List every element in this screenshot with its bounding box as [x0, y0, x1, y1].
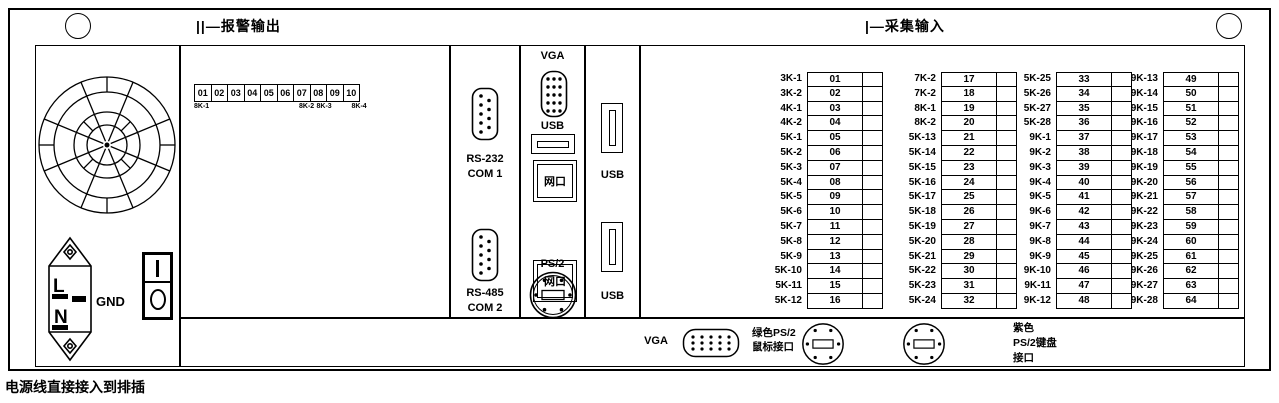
terminal-number-cell: 46	[1056, 264, 1112, 279]
terminal-number-cell: 07	[807, 161, 863, 176]
terminal-number-cell: 57	[1163, 190, 1219, 205]
terminal-label: 9K-26	[1113, 264, 1158, 279]
terminal-empty-cell	[863, 102, 883, 117]
terminal-number-cell: 55	[1163, 161, 1219, 176]
terminal-number-cell: 50	[1163, 87, 1219, 102]
rear-panel: ||—报警输出 |—采集输入	[8, 8, 1271, 371]
terminal-number-cell: 06	[807, 146, 863, 161]
terminal-label: 9K-2	[1006, 146, 1051, 161]
screw-hole-icon	[1216, 13, 1242, 39]
terminal-number-cell: 39	[1056, 161, 1112, 176]
terminal-number-cell: 53	[1163, 131, 1219, 146]
terminal-number-cell: 43	[1056, 220, 1112, 235]
alarm-terminal-cell: 06	[277, 84, 295, 102]
terminal-row: 49	[1163, 72, 1239, 87]
terminal-number-cell: 08	[807, 176, 863, 191]
terminal-label: 9K-15	[1113, 102, 1158, 117]
terminal-number-cell: 17	[941, 72, 997, 87]
terminal-table: 49505152535455565758596061626364	[1163, 72, 1239, 309]
alarm-terminal-cell: 03	[227, 84, 245, 102]
terminal-number-cell: 20	[941, 116, 997, 131]
ps2-label: PS/2	[521, 258, 584, 270]
terminal-label: 9K-25	[1113, 250, 1158, 265]
terminal-label: 5K-7	[757, 220, 802, 235]
alarm-sublabels: 8K-18K-28K-38K-4	[194, 103, 374, 113]
terminal-row: 10	[807, 205, 883, 220]
switch-off-mark	[145, 283, 170, 316]
terminal-empty-cell	[1219, 205, 1239, 220]
terminal-number-cell: 62	[1163, 264, 1219, 279]
alarm-relay-label: 8K-3	[317, 103, 332, 110]
terminal-number-cell: 23	[941, 161, 997, 176]
terminal-number-cell: 18	[941, 87, 997, 102]
terminal-number-cell: 52	[1163, 116, 1219, 131]
terminal-row: 54	[1163, 146, 1239, 161]
terminal-label: 5K-15	[891, 161, 936, 176]
terminal-label: 9K-6	[1006, 205, 1051, 220]
usb-port-icon	[601, 103, 623, 153]
gnd-label: GND	[96, 294, 125, 309]
green-ps2-mouse-label: 绿色PS/2 鼠标接口	[752, 326, 796, 354]
power-inlet-icon: L N	[44, 236, 96, 362]
terminal-label: 9K-19	[1113, 161, 1158, 176]
terminal-label: 8K-1	[891, 102, 936, 117]
terminal-label: 9K-10	[1006, 264, 1051, 279]
ps2-connector-icon	[529, 271, 577, 319]
terminal-number-cell: 25	[941, 190, 997, 205]
terminal-label: 5K-3	[757, 161, 802, 176]
terminal-empty-cell	[1219, 72, 1239, 87]
terminal-number-cell: 21	[941, 131, 997, 146]
terminal-table: 01020304050607080910111213141516	[807, 72, 883, 309]
acquisition-column-1: 3K-13K-24K-14K-25K-15K-25K-35K-45K-55K-6…	[757, 72, 883, 309]
terminal-number-cell: 27	[941, 220, 997, 235]
terminal-number-cell: 15	[807, 279, 863, 294]
terminal-number-cell: 33	[1056, 72, 1112, 87]
terminal-label: 5K-22	[891, 264, 936, 279]
terminal-label: 9K-18	[1113, 146, 1158, 161]
power-cord-note: 电源线直接接入到排插	[5, 377, 145, 397]
ethernet-port-icon: 网口	[533, 160, 577, 202]
vga-connector-icon	[540, 70, 568, 118]
video-lan-section: VGA USB 网口 网口 PS/2	[520, 45, 585, 318]
terminal-label: 5K-8	[757, 235, 802, 250]
terminal-label: 5K-20	[891, 235, 936, 250]
terminal-empty-cell	[1219, 294, 1239, 309]
terminal-label: 9K-3	[1006, 161, 1051, 176]
usb-port-icon	[531, 134, 575, 154]
alarm-output-title: ||—报警输出	[196, 16, 281, 36]
terminal-empty-cell	[1219, 190, 1239, 205]
terminal-label: 5K-11	[757, 279, 802, 294]
terminal-label: 5K-5	[757, 190, 802, 205]
terminal-empty-cell	[863, 116, 883, 131]
alarm-terminal-cell: 10	[343, 84, 361, 102]
terminal-row: 59	[1163, 220, 1239, 235]
terminal-label: 9K-24	[1113, 235, 1158, 250]
terminal-label: 4K-1	[757, 102, 802, 117]
terminal-number-cell: 32	[941, 294, 997, 309]
terminal-empty-cell	[863, 87, 883, 102]
purple-ps2-keyboard-label: 紫色 PS/2键盘 接口	[1013, 321, 1057, 366]
terminal-row: 55	[1163, 161, 1239, 176]
com1-label: COM 1	[451, 168, 519, 180]
terminal-empty-cell	[1219, 146, 1239, 161]
terminal-row: 05	[807, 131, 883, 146]
terminal-row: 57	[1163, 190, 1239, 205]
terminal-empty-cell	[1219, 279, 1239, 294]
terminal-label: 9K-11	[1006, 279, 1051, 294]
terminal-label: 3K-2	[757, 87, 802, 102]
terminal-empty-cell	[863, 205, 883, 220]
terminal-label: 9K-16	[1113, 116, 1158, 131]
terminal-label: 9K-21	[1113, 190, 1158, 205]
terminal-row: 63	[1163, 279, 1239, 294]
alarm-terminal-cell: 02	[211, 84, 229, 102]
terminal-row: 07	[807, 161, 883, 176]
terminal-empty-cell	[1219, 220, 1239, 235]
terminal-empty-cell	[863, 146, 883, 161]
switch-on-mark	[145, 255, 170, 283]
terminal-label: 9K-7	[1006, 220, 1051, 235]
terminal-empty-cell	[863, 235, 883, 250]
terminal-empty-cell	[863, 220, 883, 235]
terminal-number-cell: 14	[807, 264, 863, 279]
terminal-number-cell: 60	[1163, 235, 1219, 250]
terminal-number-cell: 26	[941, 205, 997, 220]
terminal-label: 9K-14	[1113, 87, 1158, 102]
terminal-number-cell: 02	[807, 87, 863, 102]
terminal-label: 5K-2	[757, 146, 802, 161]
terminal-number-cell: 61	[1163, 250, 1219, 265]
terminal-empty-cell	[863, 131, 883, 146]
terminal-label: 9K-13	[1113, 72, 1158, 87]
terminal-number-cell: 54	[1163, 146, 1219, 161]
terminal-number-cell: 48	[1056, 294, 1112, 309]
terminal-row: 03	[807, 102, 883, 117]
terminal-number-cell: 59	[1163, 220, 1219, 235]
terminal-row: 12	[807, 235, 883, 250]
terminal-label: 5K-12	[757, 294, 802, 309]
bottom-connector-strip: VGA 绿色PS/2 鼠标接口	[180, 318, 1245, 367]
terminal-labels: 7K-27K-28K-18K-25K-135K-145K-155K-165K-1…	[891, 72, 941, 309]
terminal-label: 5K-1	[757, 131, 802, 146]
terminal-label: 7K-2	[891, 87, 936, 102]
usb-section: USB USB	[585, 45, 640, 318]
terminal-empty-cell	[1219, 264, 1239, 279]
terminal-labels: 3K-13K-24K-14K-25K-15K-25K-35K-45K-55K-6…	[757, 72, 807, 309]
terminal-empty-cell	[863, 264, 883, 279]
alarm-terminal-cell: 04	[244, 84, 262, 102]
terminal-row: 01	[807, 72, 883, 87]
terminal-empty-cell	[1219, 161, 1239, 176]
alarm-relay-label: 8K-1	[194, 103, 209, 110]
terminal-empty-cell	[1219, 87, 1239, 102]
terminal-label: 5K-13	[891, 131, 936, 146]
terminal-row: 52	[1163, 116, 1239, 131]
terminal-number-cell: 56	[1163, 176, 1219, 191]
terminal-row: 06	[807, 146, 883, 161]
usb-label: USB	[521, 120, 584, 132]
terminal-label: 5K-27	[1006, 102, 1051, 117]
terminal-row: 13	[807, 250, 883, 265]
terminal-row: 64	[1163, 294, 1239, 309]
terminal-label: 9K-8	[1006, 235, 1051, 250]
terminal-label: 9K-12	[1006, 294, 1051, 309]
terminal-row: 51	[1163, 102, 1239, 117]
terminal-empty-cell	[1219, 235, 1239, 250]
terminal-label: 5K-26	[1006, 87, 1051, 102]
terminal-number-cell: 35	[1056, 102, 1112, 117]
terminal-label: 9K-5	[1006, 190, 1051, 205]
terminal-label: 3K-1	[757, 72, 802, 87]
terminal-label: 5K-19	[891, 220, 936, 235]
terminal-number-cell: 31	[941, 279, 997, 294]
terminal-number-cell: 34	[1056, 87, 1112, 102]
acquisition-input-section: 3K-13K-24K-14K-25K-15K-25K-35K-45K-55K-6…	[640, 45, 1245, 318]
terminal-label: 5K-23	[891, 279, 936, 294]
terminal-row: 56	[1163, 176, 1239, 191]
db9-rs232-icon	[471, 87, 499, 141]
terminal-number-cell: 29	[941, 250, 997, 265]
terminal-labels: 5K-255K-265K-275K-289K-19K-29K-39K-49K-5…	[1006, 72, 1056, 309]
vga-connector-icon	[682, 328, 740, 358]
power-switch-icon	[142, 252, 173, 320]
terminal-empty-cell	[1219, 176, 1239, 191]
com-ports-section: RS-232 COM 1 RS-485 COM 2	[450, 45, 520, 318]
acquisition-input-title: |—采集输入	[865, 16, 945, 36]
vga-label: VGA	[641, 335, 671, 347]
terminal-number-cell: 05	[807, 131, 863, 146]
terminal-label: 9K-9	[1006, 250, 1051, 265]
terminal-empty-cell	[863, 72, 883, 87]
terminal-empty-cell	[863, 190, 883, 205]
terminal-number-cell: 01	[807, 72, 863, 87]
terminal-number-cell: 22	[941, 146, 997, 161]
terminal-number-cell: 58	[1163, 205, 1219, 220]
terminal-number-cell: 09	[807, 190, 863, 205]
terminal-label: 5K-17	[891, 190, 936, 205]
terminal-empty-cell	[863, 279, 883, 294]
terminal-number-cell: 19	[941, 102, 997, 117]
terminal-label: 9K-28	[1113, 294, 1158, 309]
terminal-label: 5K-28	[1006, 116, 1051, 131]
terminal-number-cell: 41	[1056, 190, 1112, 205]
terminal-label: 7K-2	[891, 72, 936, 87]
terminal-row: 14	[807, 264, 883, 279]
terminal-number-cell: 36	[1056, 116, 1112, 131]
fan-power-section: L N GND	[35, 45, 180, 367]
terminal-empty-cell	[863, 294, 883, 309]
terminal-number-cell: 64	[1163, 294, 1219, 309]
terminal-number-cell: 42	[1056, 205, 1112, 220]
terminal-label: 5K-18	[891, 205, 936, 220]
terminal-label: 5K-4	[757, 176, 802, 191]
terminal-row: 60	[1163, 235, 1239, 250]
screw-hole-icon	[65, 13, 91, 39]
terminal-label: 4K-2	[757, 116, 802, 131]
alarm-terminal-cell: 09	[326, 84, 344, 102]
terminal-number-cell: 30	[941, 264, 997, 279]
terminal-label: 5K-16	[891, 176, 936, 191]
terminal-label: 5K-24	[891, 294, 936, 309]
terminal-row: 09	[807, 190, 883, 205]
terminal-number-cell: 47	[1056, 279, 1112, 294]
terminal-row: 08	[807, 176, 883, 191]
usb-label: USB	[586, 290, 639, 302]
terminal-number-cell: 44	[1056, 235, 1112, 250]
terminal-empty-cell	[1219, 102, 1239, 117]
line-terminal-label: L	[53, 276, 65, 297]
terminal-row: 62	[1163, 264, 1239, 279]
ps2-mouse-connector-icon	[801, 322, 845, 366]
neutral-terminal-label: N	[54, 307, 68, 328]
terminal-number-cell: 63	[1163, 279, 1219, 294]
alarm-terminal-cell: 07	[293, 84, 311, 102]
terminal-row: 02	[807, 87, 883, 102]
terminal-label: 5K-21	[891, 250, 936, 265]
terminal-label: 5K-10	[757, 264, 802, 279]
terminal-row: 11	[807, 220, 883, 235]
terminal-empty-cell	[1219, 131, 1239, 146]
terminal-empty-cell	[863, 176, 883, 191]
terminal-number-cell: 03	[807, 102, 863, 117]
rs232-label: RS-232	[451, 153, 519, 165]
terminal-number-cell: 28	[941, 235, 997, 250]
alarm-terminal-cell: 08	[310, 84, 328, 102]
terminal-row: 53	[1163, 131, 1239, 146]
terminal-number-cell: 51	[1163, 102, 1219, 117]
terminal-row: 61	[1163, 250, 1239, 265]
terminal-number-cell: 40	[1056, 176, 1112, 191]
rs485-label: RS-485	[451, 287, 519, 299]
terminal-number-cell: 37	[1056, 131, 1112, 146]
terminal-number-cell: 45	[1056, 250, 1112, 265]
terminal-number-cell: 24	[941, 176, 997, 191]
terminal-number-cell: 04	[807, 116, 863, 131]
usb-port-icon	[601, 222, 623, 272]
terminal-row: 58	[1163, 205, 1239, 220]
terminal-label: 9K-22	[1113, 205, 1158, 220]
acquisition-column-2: 7K-27K-28K-18K-25K-135K-145K-155K-165K-1…	[891, 72, 1017, 309]
terminal-number-cell: 13	[807, 250, 863, 265]
com2-label: COM 2	[451, 302, 519, 314]
terminal-label: 5K-14	[891, 146, 936, 161]
usb-label: USB	[586, 169, 639, 181]
terminal-labels: 9K-139K-149K-159K-169K-179K-189K-199K-20…	[1113, 72, 1163, 309]
acquisition-column-4: 9K-139K-149K-159K-169K-179K-189K-199K-20…	[1113, 72, 1239, 309]
alarm-relay-label: 8K-2	[299, 103, 314, 110]
terminal-row: 04	[807, 116, 883, 131]
terminal-label: 8K-2	[891, 116, 936, 131]
terminal-row: 16	[807, 294, 883, 309]
terminal-label: 9K-4	[1006, 176, 1051, 191]
ps2-keyboard-connector-icon	[902, 322, 946, 366]
terminal-number-cell: 49	[1163, 72, 1219, 87]
terminal-label: 5K-6	[757, 205, 802, 220]
terminal-label: 9K-27	[1113, 279, 1158, 294]
alarm-terminal-strip: 01020304050607080910	[194, 84, 360, 102]
alarm-terminal-cell: 05	[260, 84, 278, 102]
terminal-label: 9K-1	[1006, 131, 1051, 146]
terminal-label: 9K-20	[1113, 176, 1158, 191]
fan-icon	[37, 75, 177, 215]
terminal-label: 5K-25	[1006, 72, 1051, 87]
terminal-number-cell: 16	[807, 294, 863, 309]
terminal-row: 15	[807, 279, 883, 294]
terminal-empty-cell	[863, 250, 883, 265]
vga-label: VGA	[521, 50, 584, 62]
alarm-terminal-cell: 01	[194, 84, 212, 102]
terminal-row: 50	[1163, 87, 1239, 102]
alarm-relay-label: 8K-4	[352, 103, 367, 110]
terminal-number-cell: 11	[807, 220, 863, 235]
terminal-empty-cell	[1219, 116, 1239, 131]
db9-rs485-icon	[471, 228, 499, 282]
terminal-number-cell: 12	[807, 235, 863, 250]
terminal-label: 9K-17	[1113, 131, 1158, 146]
terminal-empty-cell	[863, 161, 883, 176]
terminal-number-cell: 38	[1056, 146, 1112, 161]
terminal-label: 5K-9	[757, 250, 802, 265]
ethernet-port-label: 网口	[537, 164, 573, 198]
terminal-number-cell: 10	[807, 205, 863, 220]
terminal-empty-cell	[1219, 250, 1239, 265]
terminal-label: 9K-23	[1113, 220, 1158, 235]
alarm-output-section: 01020304050607080910 8K-18K-28K-38K-4	[180, 45, 450, 318]
